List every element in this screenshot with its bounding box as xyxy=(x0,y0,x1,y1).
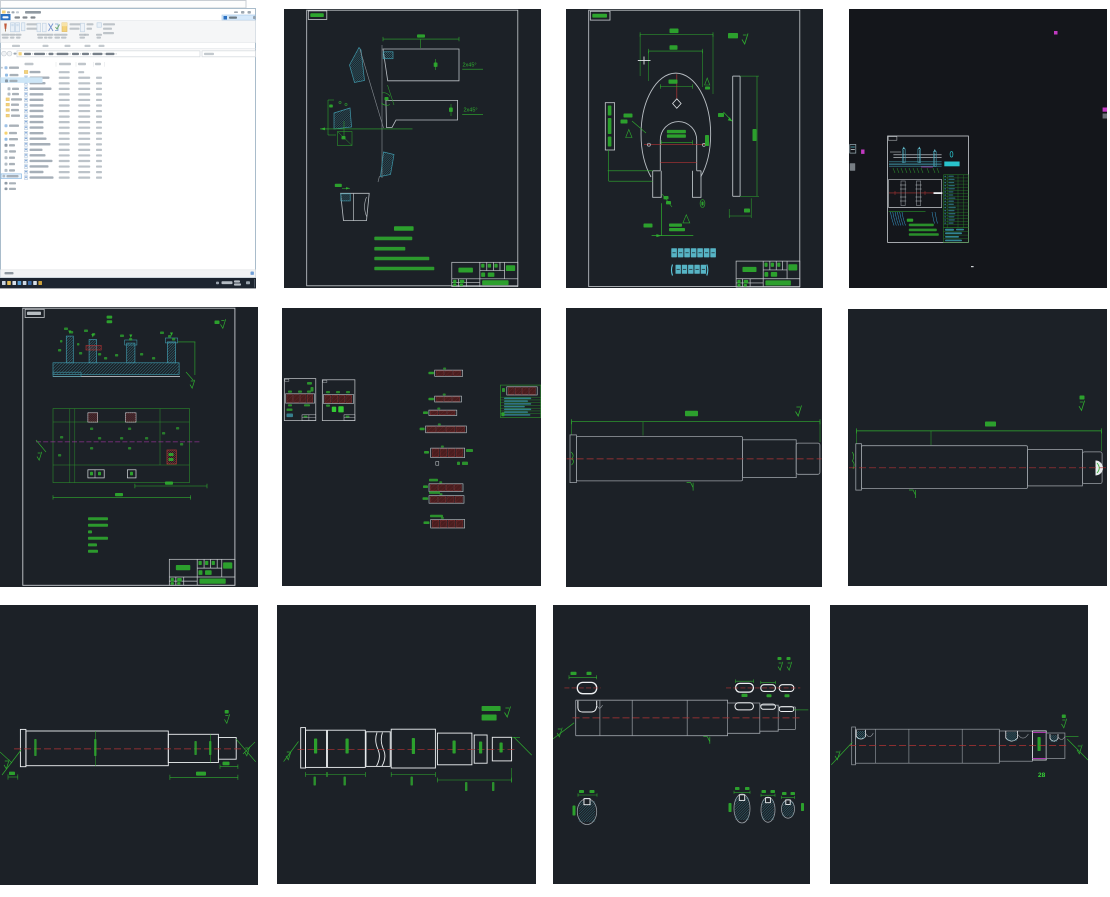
svg-text:28: 28 xyxy=(1038,772,1046,779)
svg-text:2x45°: 2x45° xyxy=(464,108,478,114)
svg-text:2x45°: 2x45° xyxy=(463,63,477,69)
